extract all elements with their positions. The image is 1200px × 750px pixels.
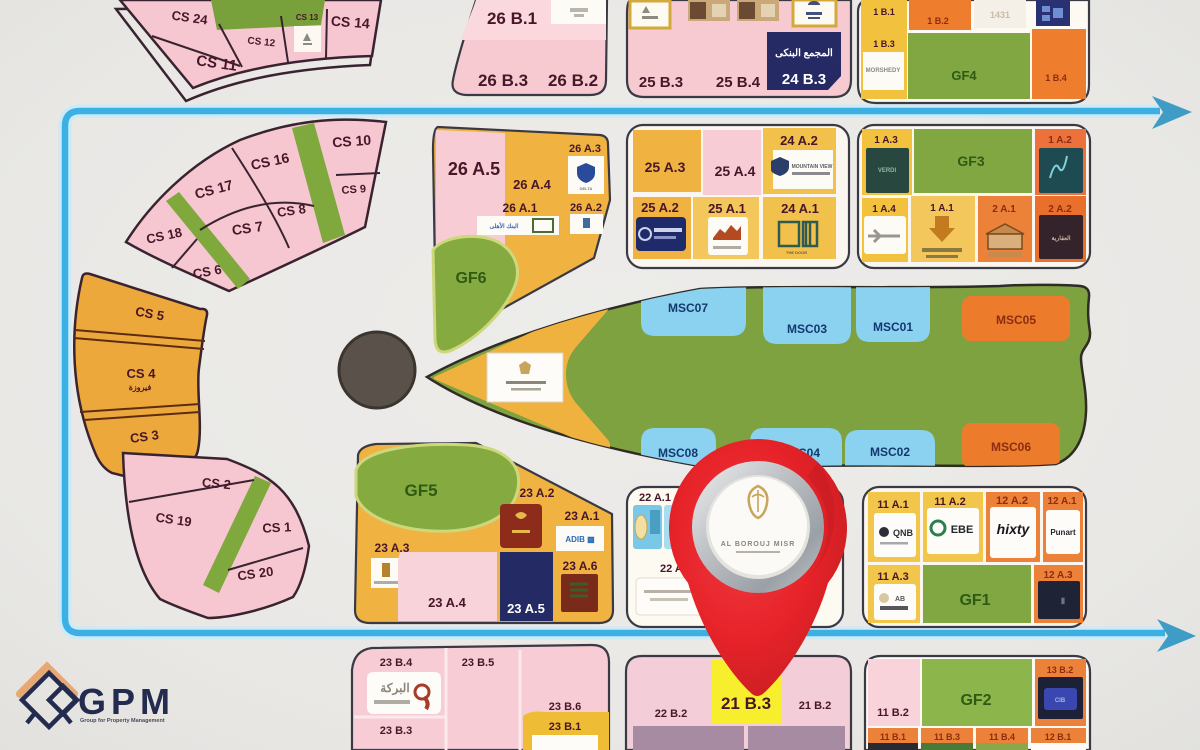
svg-text:11 A.2: 11 A.2 [934, 496, 965, 508]
svg-text:CS 2: CS 2 [201, 475, 231, 492]
svg-text:البركة: البركة [380, 681, 409, 696]
svg-text:23 B.1: 23 B.1 [549, 721, 581, 733]
svg-text:1 A.4: 1 A.4 [872, 204, 896, 215]
svg-text:23 A.2: 23 A.2 [520, 486, 555, 500]
svg-text:CS 9: CS 9 [341, 183, 366, 197]
svg-text:23 A.4: 23 A.4 [428, 595, 467, 610]
svg-text:MSC06: MSC06 [991, 440, 1031, 454]
svg-text:GF4: GF4 [951, 68, 977, 83]
svg-text:1 A.2: 1 A.2 [1048, 135, 1072, 146]
svg-text:11 B.1: 11 B.1 [880, 732, 906, 742]
svg-text:GPM: GPM [78, 681, 175, 722]
svg-text:25 A.1: 25 A.1 [708, 201, 746, 216]
svg-text:GF2: GF2 [960, 692, 991, 709]
svg-text:1 B.2: 1 B.2 [927, 16, 949, 26]
svg-text:Punart: Punart [1050, 528, 1076, 537]
svg-text:26 A.3: 26 A.3 [569, 143, 601, 155]
svg-text:23 B.5: 23 B.5 [462, 657, 494, 669]
svg-text:GF5: GF5 [404, 481, 437, 500]
svg-text:CIB: CIB [1055, 698, 1066, 704]
svg-text:24 B.3: 24 B.3 [782, 71, 826, 88]
svg-text:1431: 1431 [990, 10, 1010, 20]
svg-text:CS 10: CS 10 [332, 132, 372, 151]
svg-text:CS 13: CS 13 [296, 13, 319, 22]
svg-text:12 A.2: 12 A.2 [996, 495, 1028, 507]
svg-text:EBE: EBE [951, 524, 974, 536]
svg-text:CS 14: CS 14 [330, 13, 370, 32]
svg-text:11 B.3: 11 B.3 [934, 732, 960, 742]
svg-text:24 A.2: 24 A.2 [780, 133, 818, 148]
svg-text:CS 4: CS 4 [127, 366, 157, 381]
svg-text:12 A.3: 12 A.3 [1043, 570, 1073, 581]
svg-text:21 B.2: 21 B.2 [799, 700, 831, 712]
svg-text:1 B.4: 1 B.4 [1045, 73, 1067, 83]
svg-text:25 B.3: 25 B.3 [639, 74, 683, 91]
svg-text:العقارية: العقارية [1051, 235, 1070, 242]
svg-text:فيروزة: فيروزة [129, 383, 152, 393]
svg-text:Group for Property Management: Group for Property Management [80, 718, 165, 724]
svg-text:25 B.4: 25 B.4 [716, 74, 761, 91]
svg-text:26 A.1: 26 A.1 [503, 201, 538, 215]
svg-text:MSC03: MSC03 [787, 322, 827, 336]
svg-text:MSC07: MSC07 [668, 301, 708, 315]
svg-text:AB: AB [895, 596, 905, 603]
svg-text:21 B.3: 21 B.3 [721, 694, 771, 713]
svg-text:QNB: QNB [893, 528, 914, 538]
svg-text:VERDI: VERDI [878, 168, 897, 174]
svg-text:GF6: GF6 [455, 270, 486, 287]
svg-text:MSC02: MSC02 [870, 445, 910, 459]
svg-text:11 A.1: 11 A.1 [877, 499, 908, 511]
svg-text:2 A.1: 2 A.1 [992, 204, 1016, 215]
svg-text:26 A.5: 26 A.5 [448, 159, 500, 179]
svg-text:26 B.3: 26 B.3 [478, 71, 528, 90]
svg-text:13 B.2: 13 B.2 [1047, 665, 1074, 675]
svg-text:MOUNTAIN VIEW: MOUNTAIN VIEW [792, 164, 833, 170]
svg-text:26 B.1: 26 B.1 [487, 9, 537, 28]
svg-text:2 A.2: 2 A.2 [1048, 204, 1072, 215]
svg-text:25 A.4: 25 A.4 [715, 163, 756, 179]
svg-text:المجمع البنكى: المجمع البنكى [775, 48, 833, 59]
svg-text:MSC08: MSC08 [658, 446, 698, 460]
svg-text:26 A.2: 26 A.2 [570, 202, 602, 214]
svg-text:23 B.6: 23 B.6 [549, 701, 581, 713]
svg-text:23 A.5: 23 A.5 [507, 601, 545, 616]
svg-text:23 B.3: 23 B.3 [380, 725, 412, 737]
svg-text:1 B.3: 1 B.3 [873, 39, 895, 49]
svg-text:CS 1: CS 1 [262, 519, 292, 535]
svg-text:25 A.2: 25 A.2 [641, 200, 679, 215]
svg-text:MSC01: MSC01 [873, 320, 913, 334]
svg-text:22 B.2: 22 B.2 [655, 708, 687, 720]
svg-text:22 A.1: 22 A.1 [639, 492, 671, 504]
svg-text:1 B.1: 1 B.1 [873, 7, 895, 17]
svg-text:23 B.4: 23 B.4 [380, 657, 413, 669]
svg-text:GF1: GF1 [959, 592, 990, 609]
svg-text:AL BOROUJ MISR: AL BOROUJ MISR [721, 541, 796, 548]
svg-text:hixty: hixty [997, 521, 1031, 537]
svg-text:GF3: GF3 [957, 153, 984, 169]
svg-text:▮: ▮ [1061, 596, 1065, 605]
svg-text:1 A.3: 1 A.3 [874, 135, 898, 146]
svg-text:12 B.1: 12 B.1 [1045, 732, 1072, 742]
svg-text:1 A.1: 1 A.1 [930, 203, 954, 214]
svg-text:23 A.1: 23 A.1 [565, 509, 600, 523]
svg-text:11 B.4: 11 B.4 [989, 732, 1015, 742]
svg-text:DELTA: DELTA [580, 186, 593, 191]
svg-text:26 A.4: 26 A.4 [513, 177, 552, 192]
svg-text:24 A.1: 24 A.1 [781, 201, 819, 216]
svg-text:12 A.1: 12 A.1 [1047, 496, 1077, 507]
svg-text:23 A.6: 23 A.6 [563, 559, 598, 573]
svg-text:THE DOOR: THE DOOR [786, 250, 807, 255]
svg-text:26 B.2: 26 B.2 [548, 71, 598, 90]
svg-text:MSC05: MSC05 [996, 313, 1036, 327]
svg-text:25 A.3: 25 A.3 [645, 159, 686, 175]
svg-text:11 A.3: 11 A.3 [877, 571, 908, 583]
svg-text:11 B.2: 11 B.2 [877, 707, 909, 719]
svg-text:MORSHEDY: MORSHEDY [866, 68, 901, 74]
svg-text:ADIB ▩: ADIB ▩ [565, 535, 594, 544]
